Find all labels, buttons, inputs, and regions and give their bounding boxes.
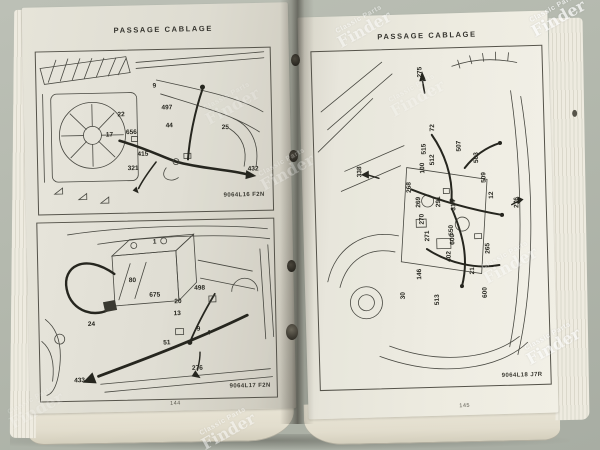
callout-label: 44 [166, 122, 173, 129]
callout-label: 100 [419, 163, 426, 174]
binder-hole [289, 150, 298, 162]
callout-label: 509 [480, 172, 487, 183]
callout-label: 512 [429, 154, 436, 165]
callout-label: 4 [207, 329, 211, 336]
callout-label: 415 [137, 151, 148, 158]
callout-label: 675 [149, 291, 160, 298]
callout-label: 291 [435, 196, 442, 207]
callout-label: 24 [88, 321, 95, 328]
drawing-reference-caption: 9064L16 F2N [224, 192, 265, 199]
callout-label: 321 [128, 165, 139, 172]
callout-label: 146 [416, 269, 423, 280]
callout-label: 17 [106, 131, 113, 138]
callout-label: 276 [192, 365, 203, 372]
callout-label: 338 [356, 166, 363, 177]
book-photo: PASSAGE CABLAGE [0, 0, 600, 450]
callout-label: 600 [482, 287, 489, 298]
binder-hole [291, 54, 300, 66]
callout-label: 600 [449, 234, 456, 245]
binder-hole [287, 260, 296, 272]
callout-label: 515 [421, 144, 428, 155]
callout-label: 20 [174, 298, 181, 305]
left-page: PASSAGE CABLAGE [22, 2, 296, 413]
wiring-diagram-front-end: 949722176564441532125432 9064L16 F2N [35, 47, 274, 216]
callout-label: 13 [174, 310, 181, 317]
callout-label: 498 [194, 285, 205, 292]
callout-label: 30 [400, 292, 407, 299]
wiring-diagram-engine-bay: 2757251551250750350910033826826927027129… [310, 45, 551, 391]
callout-label: 432 [248, 165, 259, 172]
callout-layer: 1806754982013945124433276 [37, 219, 277, 402]
callout-label: 12 [488, 192, 495, 199]
callout-label: 80 [129, 277, 136, 284]
callout-label: 503 [473, 152, 480, 163]
page-number: 144 [170, 400, 181, 406]
callout-label: 314 [450, 200, 457, 211]
callout-label: 25 [222, 124, 229, 131]
callout-label: 433 [74, 377, 85, 384]
callout-label: 9 [197, 326, 201, 333]
page-number: 145 [459, 403, 470, 409]
callout-label: 656 [126, 129, 137, 136]
callout-label: 1 [153, 239, 157, 246]
wiring-diagram-battery: 1806754982013945124433276 9064L17 F2N [36, 218, 278, 403]
callout-label: 270 [418, 214, 425, 225]
callout-label: 497 [161, 104, 172, 111]
callout-label: 22 [117, 111, 124, 118]
callout-label: 276 [513, 197, 520, 208]
right-page: PASSAGE CABLAGE [297, 11, 558, 420]
callout-label: 51 [163, 339, 170, 346]
callout-layer: 2757251551250750350910033826826927027129… [311, 46, 550, 390]
callout-layer: 949722176564441532125432 [36, 48, 273, 215]
page-header-right: PASSAGE CABLAGE [342, 29, 512, 43]
callout-label: 513 [434, 294, 441, 305]
callout-label: 9 [153, 83, 157, 90]
callout-label: 271 [424, 230, 431, 241]
callout-label: 402 [446, 251, 453, 262]
callout-label: 21 [469, 267, 476, 274]
callout-label: 275 [416, 67, 423, 78]
page-header-left: PASSAGE CABLAGE [78, 23, 248, 36]
callout-label: 268 [406, 182, 413, 193]
callout-label: 265 [484, 243, 491, 254]
callout-label: 269 [415, 197, 422, 208]
callout-label: 72 [429, 124, 436, 131]
callout-label: 507 [455, 141, 462, 152]
drawing-reference-caption: 9064L17 F2N [230, 383, 271, 390]
punch-hole [572, 110, 577, 117]
binder-clip [286, 324, 298, 340]
drawing-reference-caption: 9064L18 J7R [502, 372, 543, 379]
